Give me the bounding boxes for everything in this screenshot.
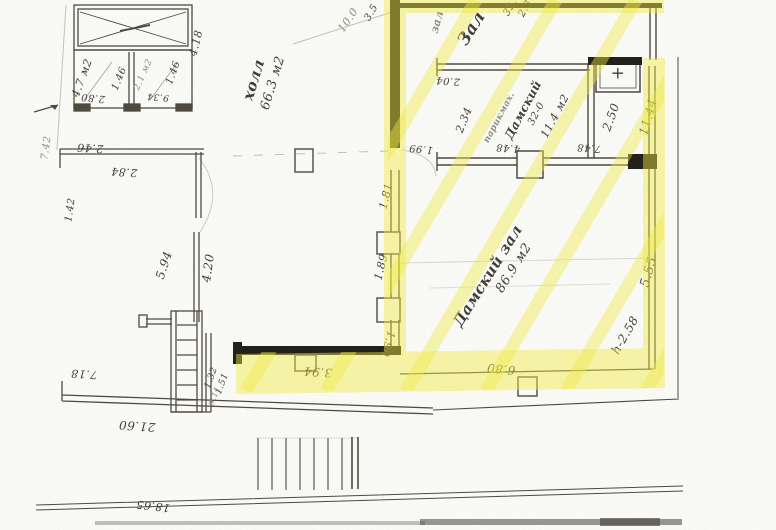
label-dim-3-5: 3.5 <box>363 3 380 23</box>
label-dim-5-94: 5.94 <box>154 249 174 280</box>
label-dim-1-90: 1.90 <box>379 330 396 358</box>
label-dim-5-55: 5.55 <box>638 255 659 288</box>
label-dim-2-34: 2.34 <box>454 106 474 135</box>
label-dim-1-81: 1.81 <box>377 182 394 210</box>
label-dim-2-50: 2.50 <box>600 101 621 132</box>
floor-plan-scan: 4.7 м22.801.462.1 м21.469.344.182.462.84… <box>0 0 776 530</box>
label-dim-1-46-b: 1.46 <box>165 60 183 86</box>
label-dim-2-46: 2.46 <box>76 142 103 155</box>
label-dim-10-0: 10.0 <box>336 6 360 34</box>
label-dim-7-18: 7.18 <box>70 368 97 381</box>
label-dim-h-2-58: h-2.58 <box>609 314 640 356</box>
label-dim-4-20: 4.20 <box>200 253 216 283</box>
label-dim-32: 32. <box>502 0 519 18</box>
label-dim-7-42: 7.42 <box>40 135 53 160</box>
label-label-zal: Зал <box>455 9 489 49</box>
label-dim-7-48: 7.48 <box>577 141 602 153</box>
label-dim-11-44: 11.44 <box>637 98 659 137</box>
label-dim-1-46-a: 1.46 <box>111 66 129 92</box>
label-dim-4-18: 4.18 <box>187 29 204 57</box>
label-dim-18-65: 18.65 <box>135 498 170 513</box>
label-dim-2-80: 2.80 <box>80 91 105 103</box>
label-plus-sign: + <box>611 66 626 83</box>
label-dim-4-48: 4.48 <box>496 141 521 153</box>
label-dim-1-99: 1.99 <box>408 142 433 154</box>
label-dim-21-60: 21.60 <box>118 419 156 434</box>
label-dim-3-94: 3.94 <box>303 365 332 379</box>
label-dim-2-84: 2.84 <box>110 166 137 179</box>
label-area-11-4: 11.4 м2 <box>539 92 571 139</box>
label-dim-6-80: 6.80 <box>486 362 516 377</box>
label-dim-1-89: 1.89 <box>372 253 389 281</box>
label-dim-2-04: 2.04 <box>436 74 461 86</box>
label-dim-1-42: 1.42 <box>64 197 77 222</box>
label-dim-9-34: 9.34 <box>147 91 170 102</box>
label-dim-2-3: 2.3 <box>517 0 534 19</box>
annotation-layer: 4.7 м22.801.462.1 м21.469.344.182.462.84… <box>0 0 776 530</box>
label-area-2-1: 2.1 м2 <box>133 58 155 92</box>
label-label-zal-faint: зал <box>429 10 446 35</box>
